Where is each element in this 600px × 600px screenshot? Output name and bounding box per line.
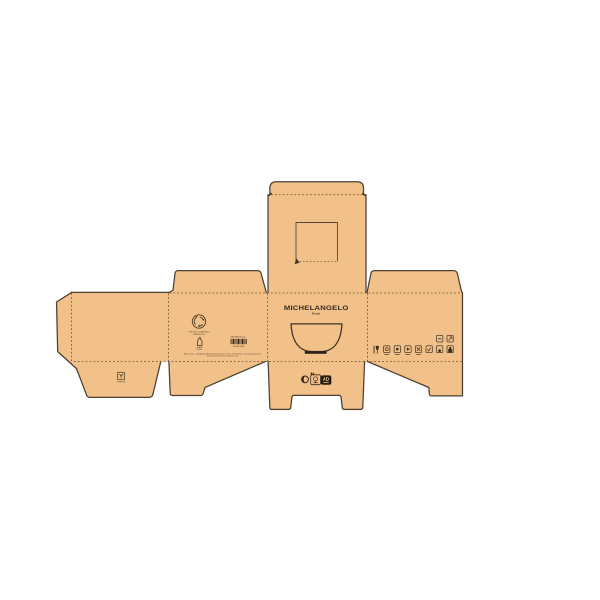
svg-text:Keep away from direct heat · H: Keep away from direct heat · Hand wash o…: [207, 355, 238, 358]
svg-text:PLEASE RECYCLE: PLEASE RECYCLE: [193, 333, 206, 336]
svg-text:8 001234 567890: 8 001234 567890: [233, 346, 245, 348]
svg-text:MIC80001-12: MIC80001-12: [231, 336, 246, 338]
svg-text:FRAGILE: FRAGILE: [117, 381, 126, 384]
svg-text:Bowl: Bowl: [312, 312, 320, 316]
svg-text:BOWL: BOWL: [197, 349, 203, 351]
